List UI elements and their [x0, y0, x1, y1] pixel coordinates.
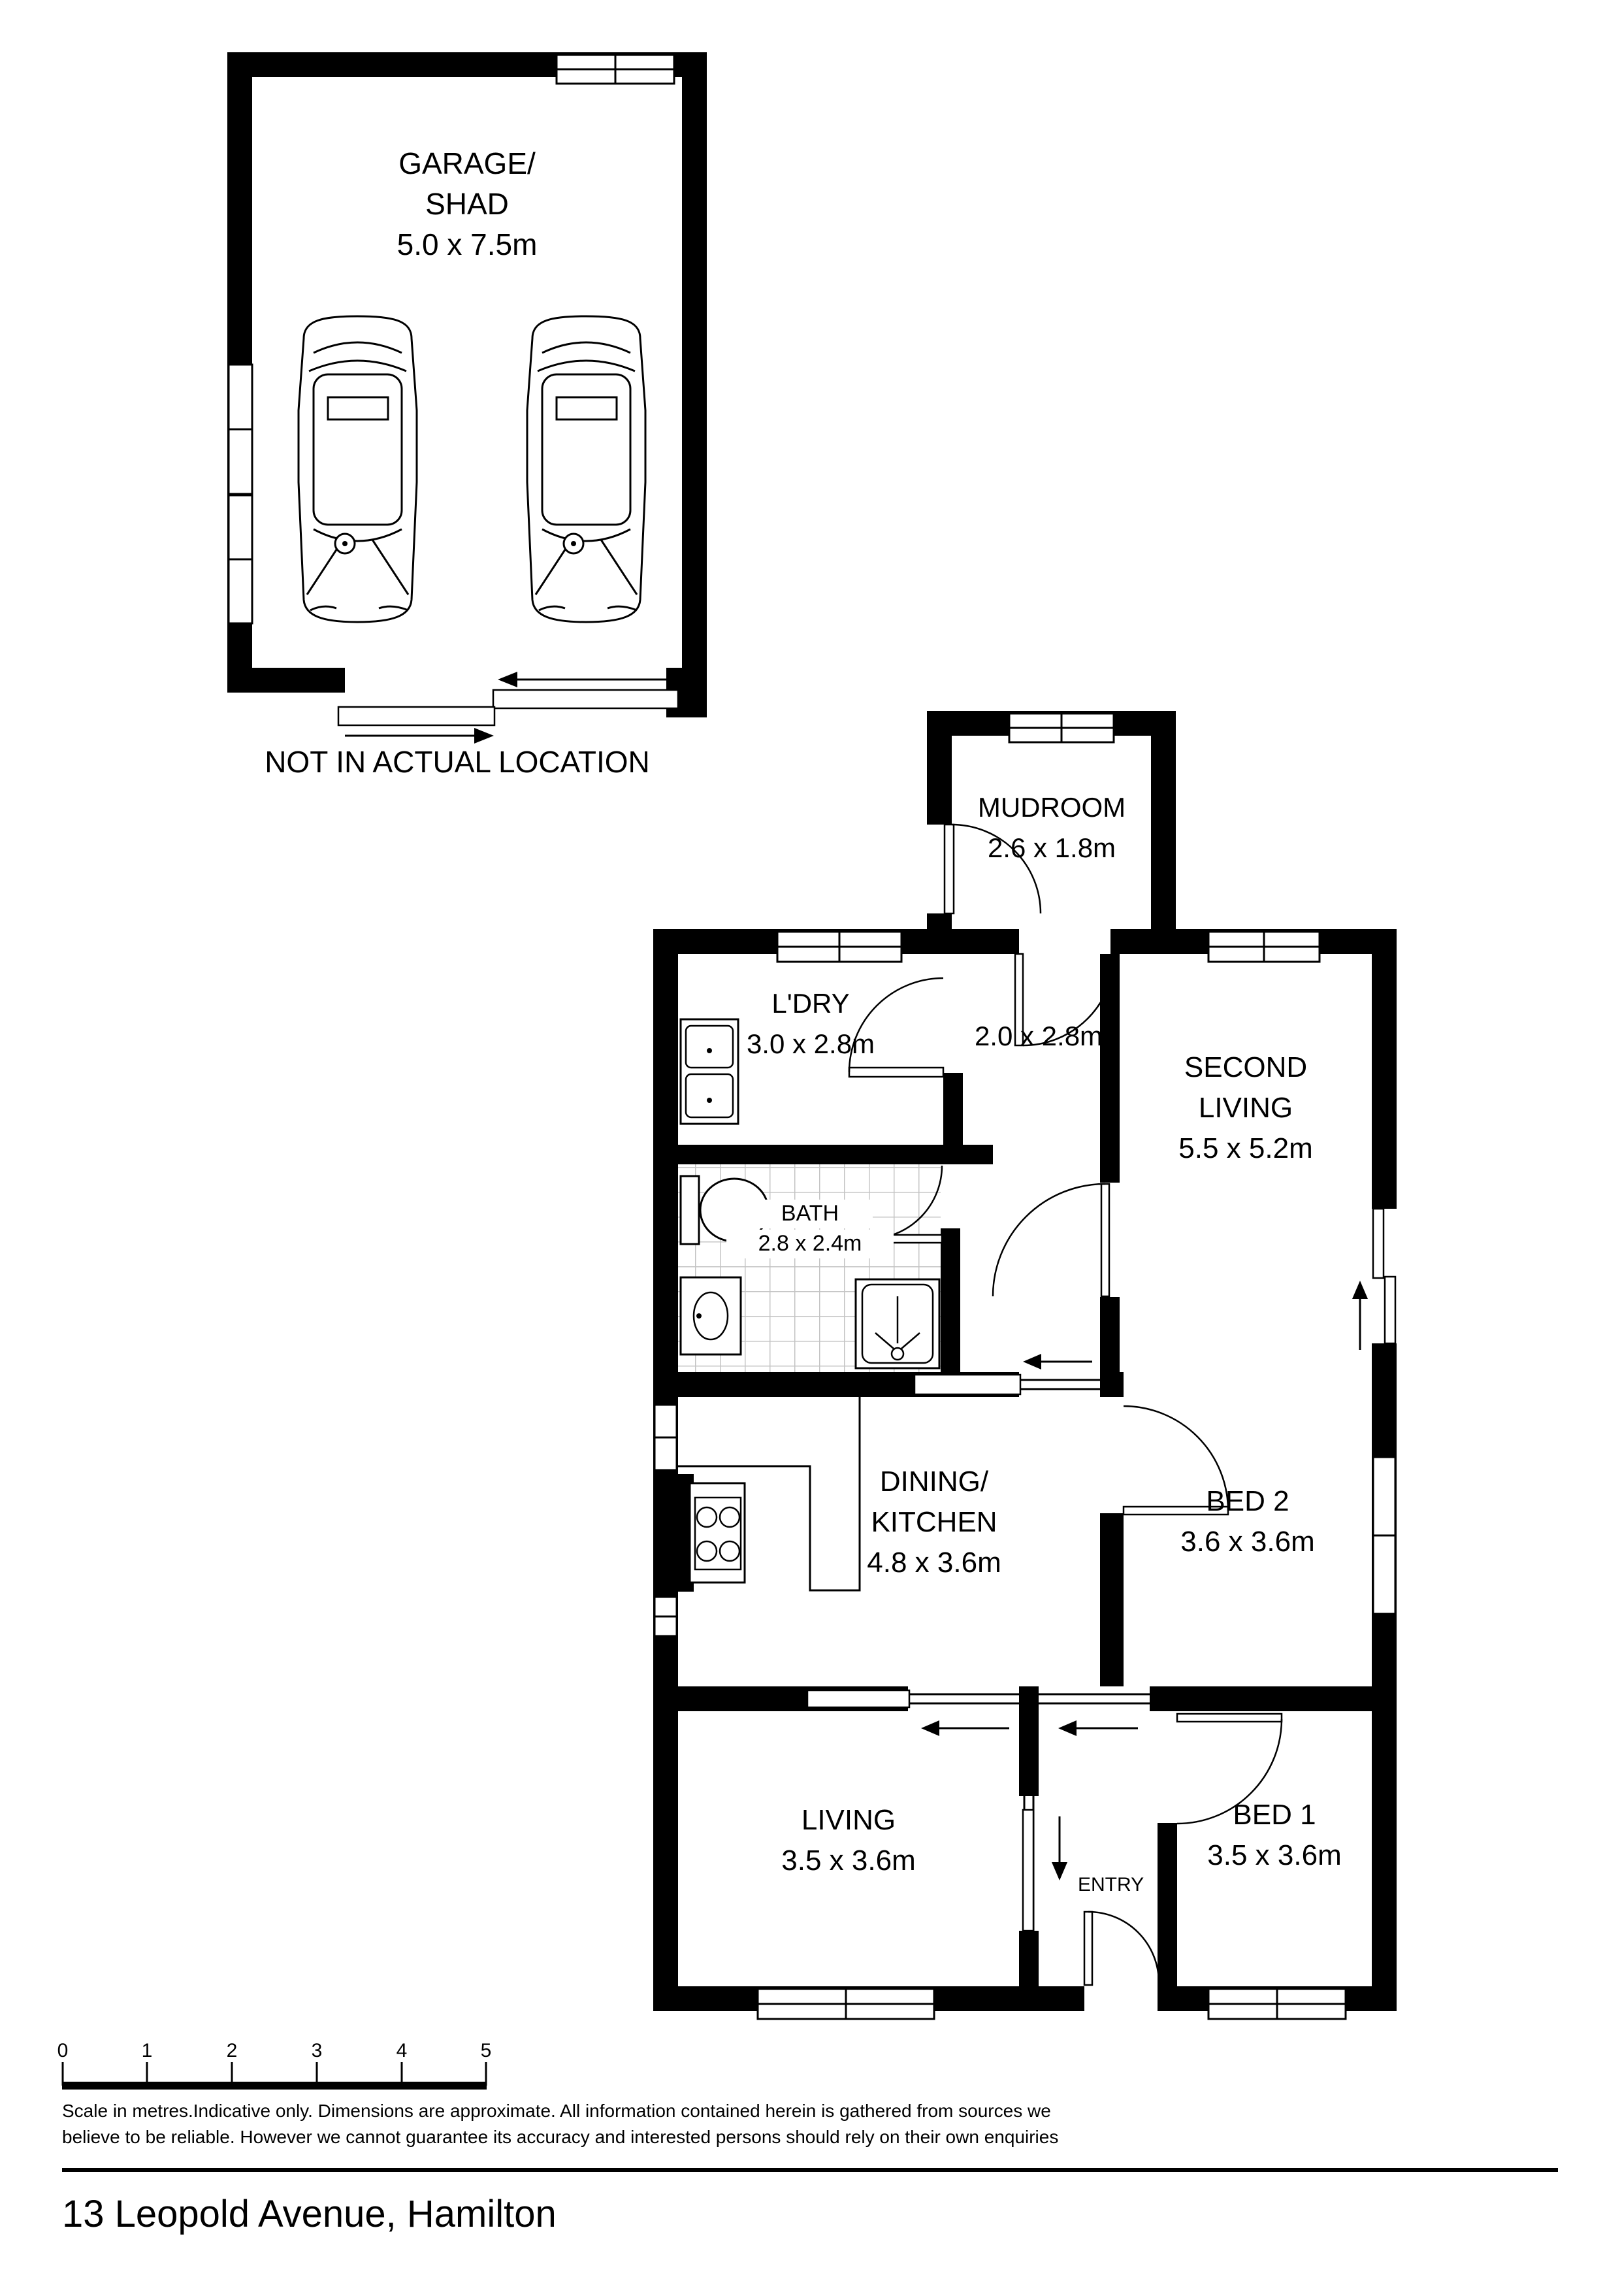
sliding-door-dining-living[interactable] — [807, 1690, 1019, 1736]
doors — [849, 825, 1282, 1985]
footer: Scale in metres.Indicative only. Dimensi… — [62, 2101, 1558, 2235]
bed1-wall-left — [1158, 1823, 1177, 2011]
mudroom-dims: 2.6 x 1.8m — [988, 832, 1116, 863]
laundry-bath-divider — [678, 1145, 993, 1164]
scale-bar: 0 1 2 3 4 5 — [57, 2040, 492, 2090]
laundry-label: L'DRY — [771, 988, 849, 1019]
garage-window-top — [557, 55, 674, 84]
entry-wall-left-lower — [1019, 1931, 1039, 2011]
bed2-wall-left — [1100, 1513, 1124, 1686]
laundry-door[interactable] — [849, 978, 943, 1077]
scale-tick-4: 4 — [397, 2040, 408, 2061]
mudroom-window — [1009, 713, 1114, 742]
scale-tick-0: 0 — [57, 2040, 69, 2061]
bath-vanity — [681, 1277, 741, 1354]
garage-window-left-1 — [229, 365, 252, 494]
garage-wall-bottom-left — [227, 668, 345, 693]
car-right — [527, 316, 645, 622]
dining-dims: 4.8 x 3.6m — [867, 1547, 1001, 1579]
footer-divider — [62, 2168, 1558, 2172]
mudroom-wall-left-lower — [927, 913, 952, 929]
disclaimer-line2: believe to be reliable. However we canno… — [62, 2127, 1058, 2147]
car-left — [299, 316, 417, 622]
hall-secondliving-wall-lower — [1100, 1297, 1120, 1372]
second-living-window — [1208, 932, 1320, 962]
living-dims: 3.5 x 3.6m — [781, 1845, 915, 1877]
floorplan-drawing: GARAGE/ SHAD 5.0 x 7.5m NOT IN ACTUAL LO… — [0, 0, 1620, 2293]
bed2-dims: 3.6 x 3.6m — [1180, 1526, 1314, 1558]
garage-sliding-door[interactable] — [338, 672, 678, 744]
laundry-sink — [681, 1019, 738, 1124]
entry-arrow — [1052, 1816, 1067, 1880]
shower — [856, 1279, 939, 1368]
floorplan-page: GARAGE/ SHAD 5.0 x 7.5m NOT IN ACTUAL LO… — [0, 0, 1620, 2293]
bed1-label: BED 1 — [1233, 1799, 1316, 1831]
second-living-label-2: LIVING — [1199, 1092, 1293, 1124]
hall-dims: 2.0 x 2.8m — [975, 1021, 1103, 1051]
wall-junction-bed2 — [1100, 1372, 1124, 1397]
dining-label-2: KITCHEN — [871, 1506, 997, 1538]
scale-tick-2: 2 — [227, 2040, 238, 2061]
bed2-window — [1373, 1457, 1395, 1614]
bed1-window — [1208, 1989, 1346, 2019]
kitchen-window-upper — [655, 1405, 677, 1470]
laundry-dims: 3.0 x 2.8m — [747, 1028, 875, 1059]
stove — [678, 1474, 745, 1592]
sliding-door-second-living-exterior[interactable] — [1352, 1209, 1395, 1350]
bed1-dims: 3.5 x 3.6m — [1207, 1839, 1341, 1871]
garage-note: NOT IN ACTUAL LOCATION — [265, 745, 650, 779]
bath-dims: 2.8 x 2.4m — [758, 1231, 862, 1256]
second-living-door[interactable] — [993, 1184, 1109, 1296]
living-label: LIVING — [802, 1804, 896, 1836]
bath-label: BATH — [781, 1201, 839, 1226]
kitchen-window-lower — [655, 1597, 677, 1636]
scale-bar-line — [62, 2082, 487, 2090]
sliding-door-entry-living[interactable] — [1023, 1796, 1033, 1931]
entry-wall-left-upper — [1019, 1686, 1039, 1796]
disclaimer-line1: Scale in metres.Indicative only. Dimensi… — [62, 2101, 1051, 2121]
garage-label-line2: SHAD — [425, 187, 509, 221]
garage-wall-right — [682, 52, 707, 693]
house-wall-right-upper — [1372, 929, 1397, 1209]
hall-secondliving-wall-upper — [1100, 954, 1120, 1183]
house-wall-top-b — [927, 929, 1019, 954]
dining-label-1: DINING/ — [880, 1466, 989, 1498]
entry-label: ENTRY — [1078, 1874, 1144, 1895]
bath-wall-right — [941, 1228, 960, 1372]
address: 13 Leopold Avenue, Hamilton — [62, 2193, 557, 2235]
scale-tick-5: 5 — [481, 2040, 492, 2061]
second-living-dims: 5.5 x 5.2m — [1178, 1132, 1312, 1164]
laundry-window — [777, 932, 901, 962]
house-wall-right-lower — [1372, 1343, 1397, 2011]
scale-tick-1: 1 — [142, 2040, 153, 2061]
living-window — [758, 1989, 934, 2019]
mudroom-wall-left-upper — [927, 711, 952, 825]
front-door[interactable] — [1084, 1912, 1159, 1985]
mudroom-wall-right — [1151, 711, 1176, 929]
sliding-door-dining-entry[interactable] — [1039, 1694, 1150, 1736]
scale-tick-3: 3 — [312, 2040, 323, 2061]
mudroom-label: MUDROOM — [978, 792, 1126, 823]
garage-label-line1: GARAGE/ — [398, 146, 536, 180]
second-living-label-1: SECOND — [1184, 1051, 1307, 1083]
garage-window-left-2 — [229, 495, 252, 623]
bed2-label: BED 2 — [1206, 1485, 1289, 1517]
garage-dims: 5.0 x 7.5m — [397, 227, 538, 261]
dining-bottom-wall-right — [1150, 1686, 1397, 1711]
